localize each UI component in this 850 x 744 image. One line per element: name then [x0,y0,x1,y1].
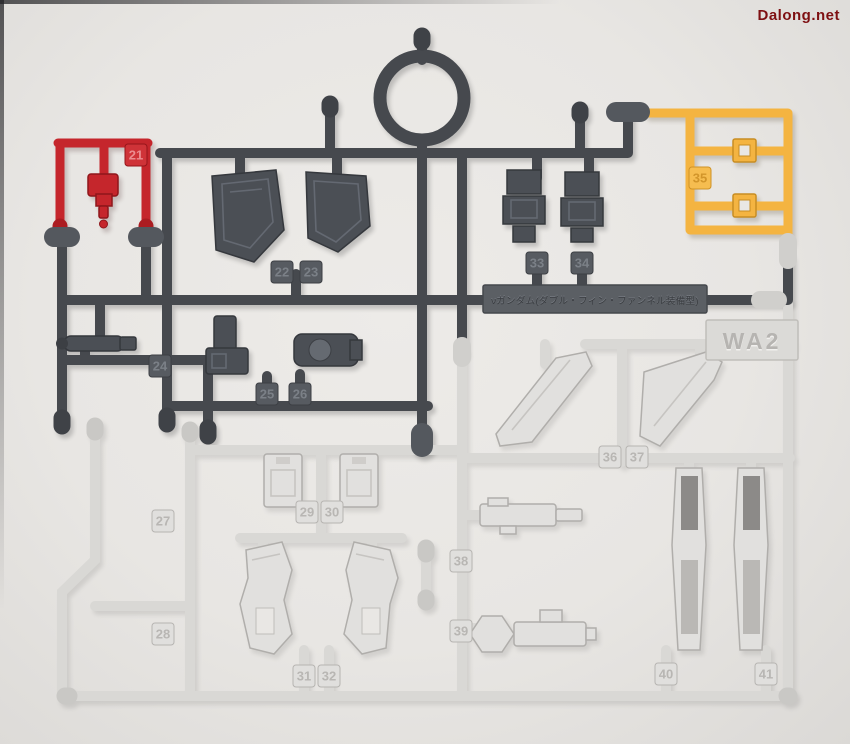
part-tag-22: 22 [271,261,293,283]
svg-text:22: 22 [275,265,289,280]
svg-text:38: 38 [454,554,468,569]
svg-text:27: 27 [156,514,170,529]
part-tag-39: 39 [450,620,472,642]
kit-name-plate: νガンダム(ダブル・フィン・ファンネル装備型) νガンダム(ダブル・フィン・ファ… [483,285,707,313]
part-tag-34: 34 [571,252,593,274]
part-tag-40: 40 [655,663,677,685]
svg-text:26: 26 [293,387,307,402]
part-tag-38: 38 [450,550,472,572]
part-tag-21: 21 [125,144,147,166]
runner-code-text: WA2 [723,328,782,354]
svg-text:30: 30 [325,505,339,520]
kit-name-text: νガンダム(ダブル・フィン・ファンネル装備型) [491,295,699,307]
part-tag-36: 36 [599,446,621,468]
part-tag-28: 28 [152,623,174,645]
part-tag-32: 32 [318,665,340,687]
part-tag-30: 30 [321,501,343,523]
svg-text:32: 32 [322,669,336,684]
watermark: Dalong.net [758,7,841,24]
part-tag-24: 24 [149,355,171,377]
svg-text:41: 41 [759,667,773,682]
runner-code-plate: WA2 WA2 [706,320,798,360]
svg-text:28: 28 [156,627,170,642]
part-tag-25: 25 [256,383,278,405]
part-tag-41: 41 [755,663,777,685]
svg-text:39: 39 [454,624,468,639]
svg-text:25: 25 [260,387,274,402]
svg-text:24: 24 [153,359,168,374]
svg-text:37: 37 [630,450,644,465]
part-tag-35: 35 [689,167,711,189]
svg-text:36: 36 [603,450,617,465]
part-tag-29: 29 [296,501,318,523]
svg-text:33: 33 [530,256,544,271]
yellow-runner [648,113,788,240]
svg-text:34: 34 [575,256,590,271]
svg-text:40: 40 [659,667,673,682]
sprue-photo: νガンダム(ダブル・フィン・ファンネル装備型) νガンダム(ダブル・フィン・ファ… [0,0,850,744]
part-tag-37: 37 [626,446,648,468]
part-tag-27: 27 [152,510,174,532]
part-tag-33: 33 [526,252,548,274]
part-tag-31: 31 [293,665,315,687]
svg-text:21: 21 [129,148,143,163]
svg-text:29: 29 [300,505,314,520]
part-tag-26: 26 [289,383,311,405]
svg-text:35: 35 [693,171,707,186]
svg-text:31: 31 [297,669,311,684]
part-tag-23: 23 [300,261,322,283]
svg-text:23: 23 [304,265,318,280]
